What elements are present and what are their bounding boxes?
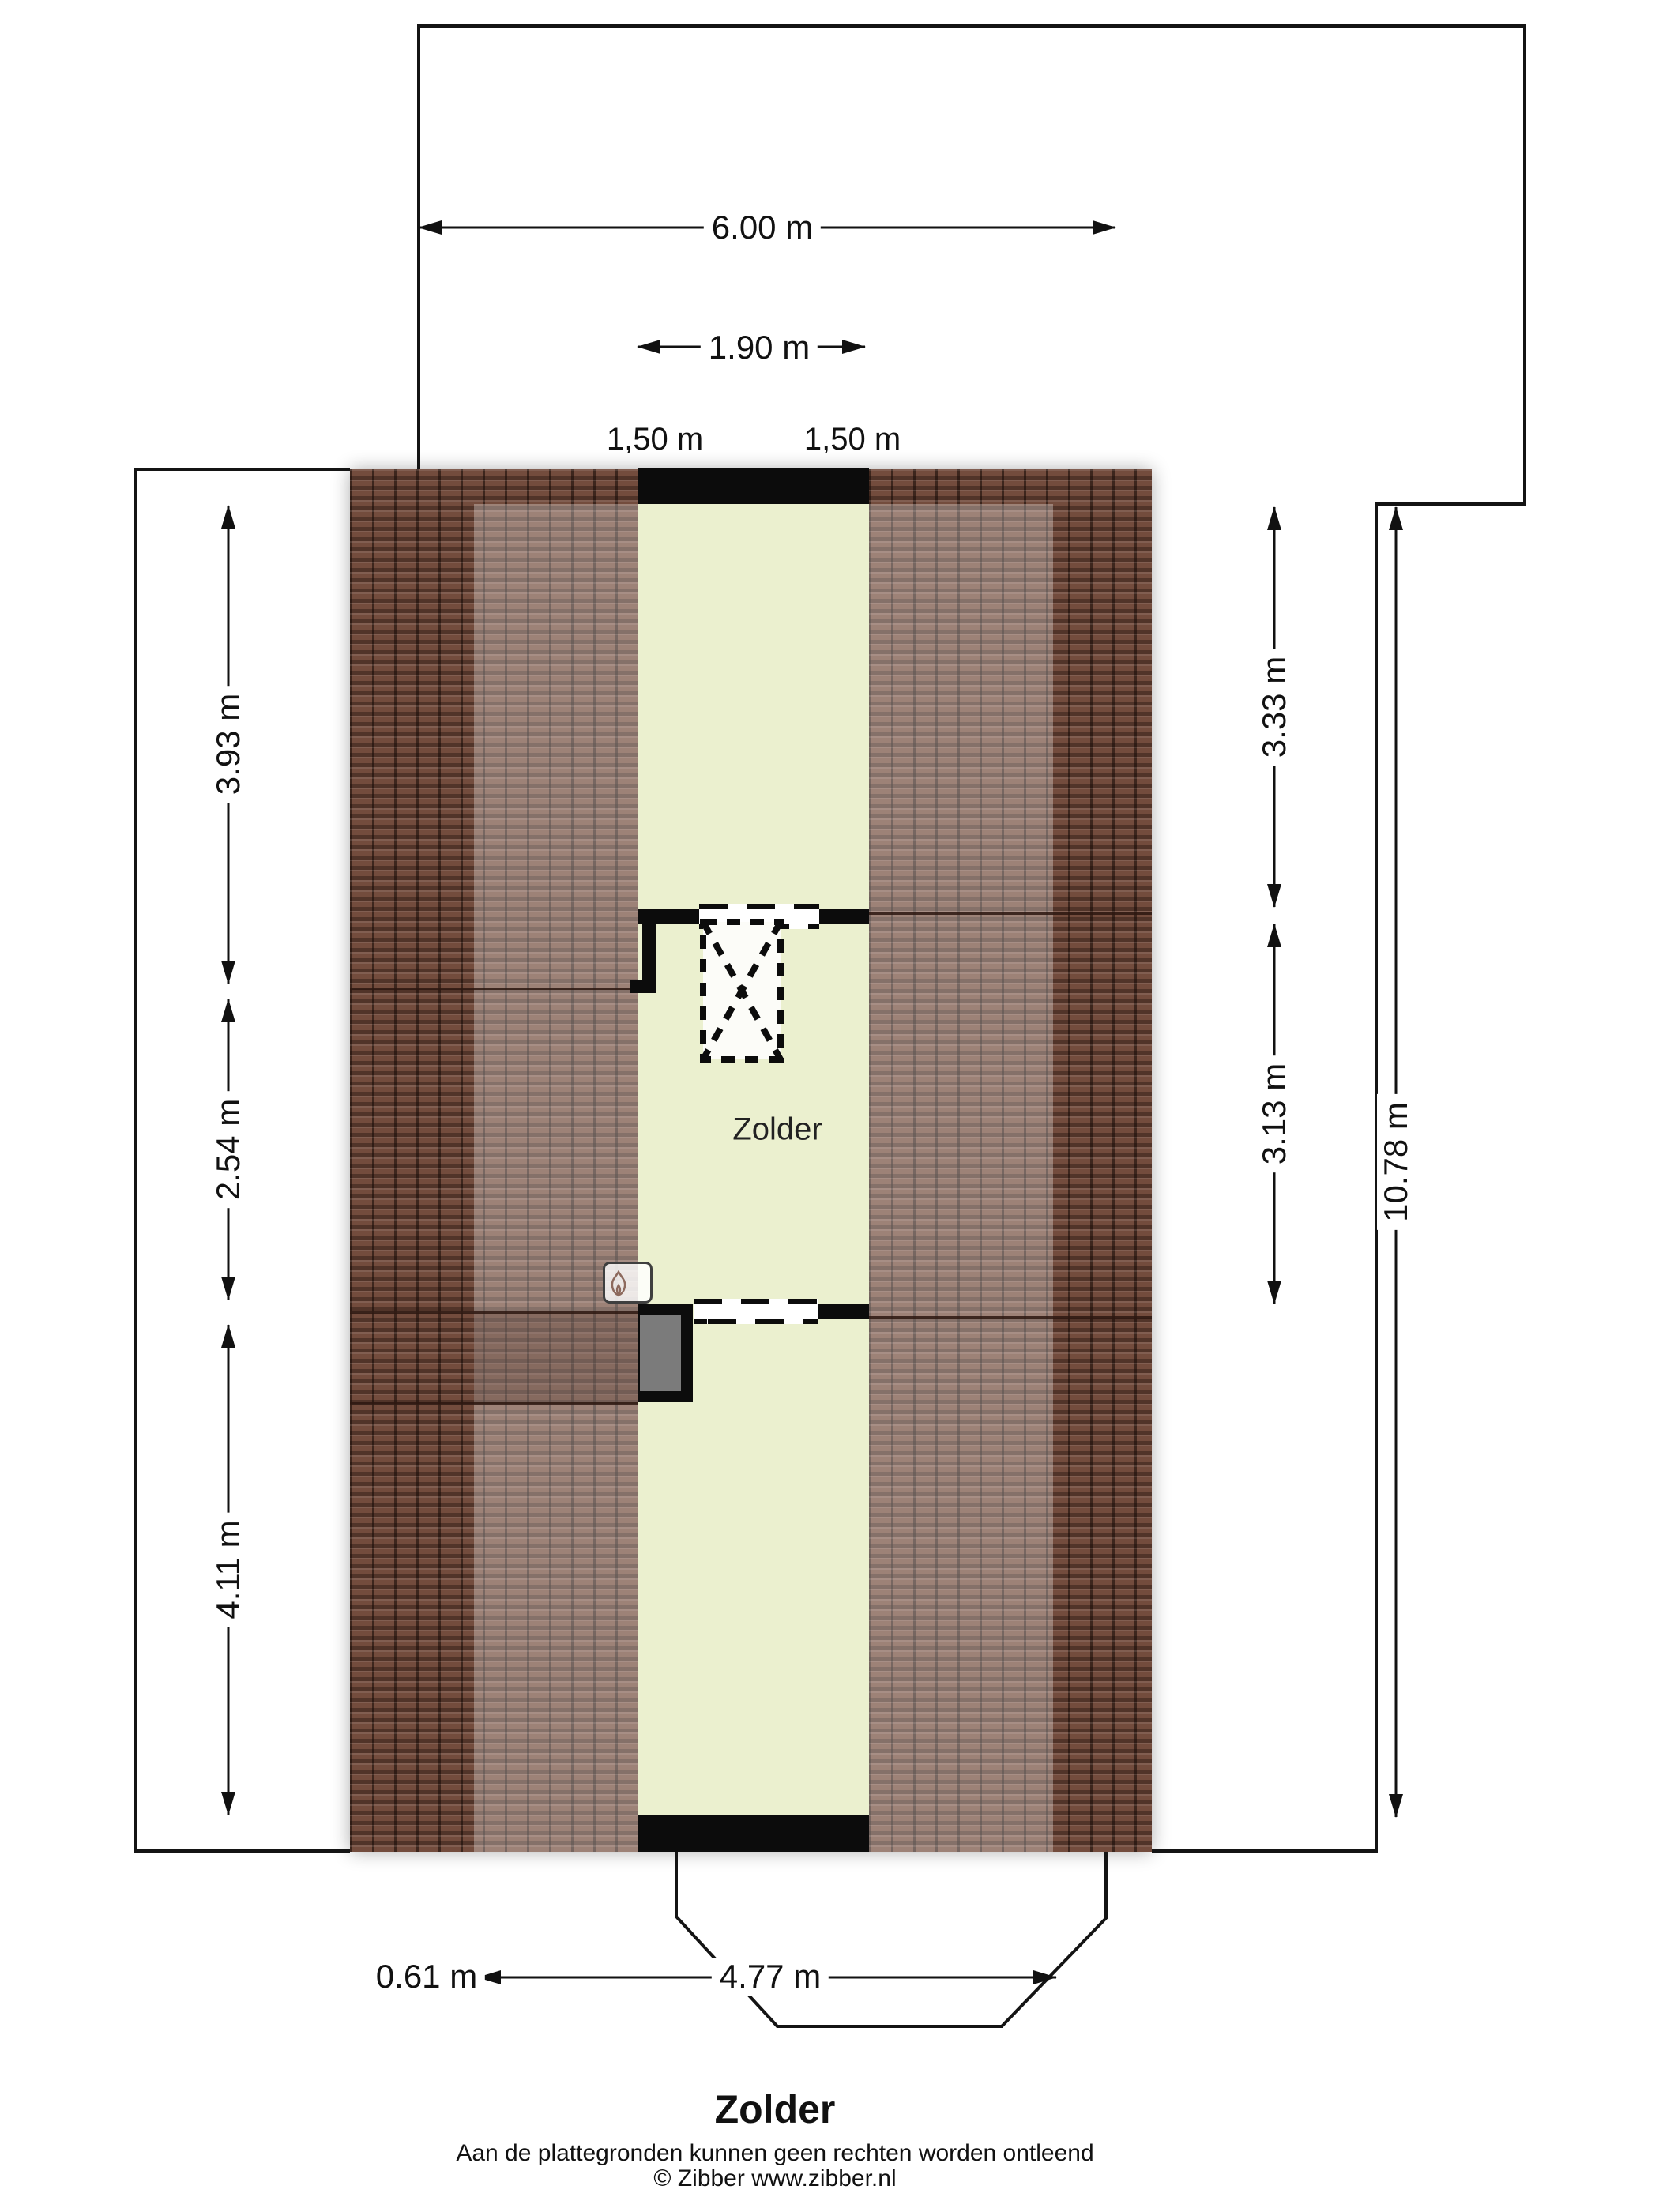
dim-top-total: 6.00 m xyxy=(704,209,821,246)
dim-headroom-left: 1,50 m xyxy=(607,423,703,455)
dim-left-bottom: 4.11 m xyxy=(209,1512,247,1627)
dim-bottom-bay: 4.77 m xyxy=(712,1958,829,1996)
dim-headroom-right: 1,50 m xyxy=(804,423,901,455)
room-label: Zolder xyxy=(732,1112,822,1148)
dim-left-top: 3.93 m xyxy=(209,686,247,803)
dim-right-top: 3.33 m xyxy=(1255,649,1293,766)
dim-right-total: 10.78 m xyxy=(1377,1094,1415,1230)
bay-window-outline xyxy=(676,1852,1106,2026)
copyright-text: © Zibber www.zibber.nl xyxy=(653,2165,896,2192)
disclaimer-text: Aan de plattegronden kunnen geen rechten… xyxy=(456,2140,1093,2167)
dim-right-middle: 3.13 m xyxy=(1255,1055,1293,1172)
dim-dormer: 1.90 m xyxy=(701,329,818,367)
dim-bottom-offset: 0.61 m xyxy=(368,1958,485,1996)
page-title: Zolder xyxy=(715,2086,836,2132)
footprint-outline-main xyxy=(419,26,1525,1851)
floor-plan-canvas: 6.00 m 1.90 m 1,50 m 1,50 m 3.93 m 2.54 … xyxy=(0,0,1659,2212)
dim-left-middle: 2.54 m xyxy=(209,1091,247,1208)
